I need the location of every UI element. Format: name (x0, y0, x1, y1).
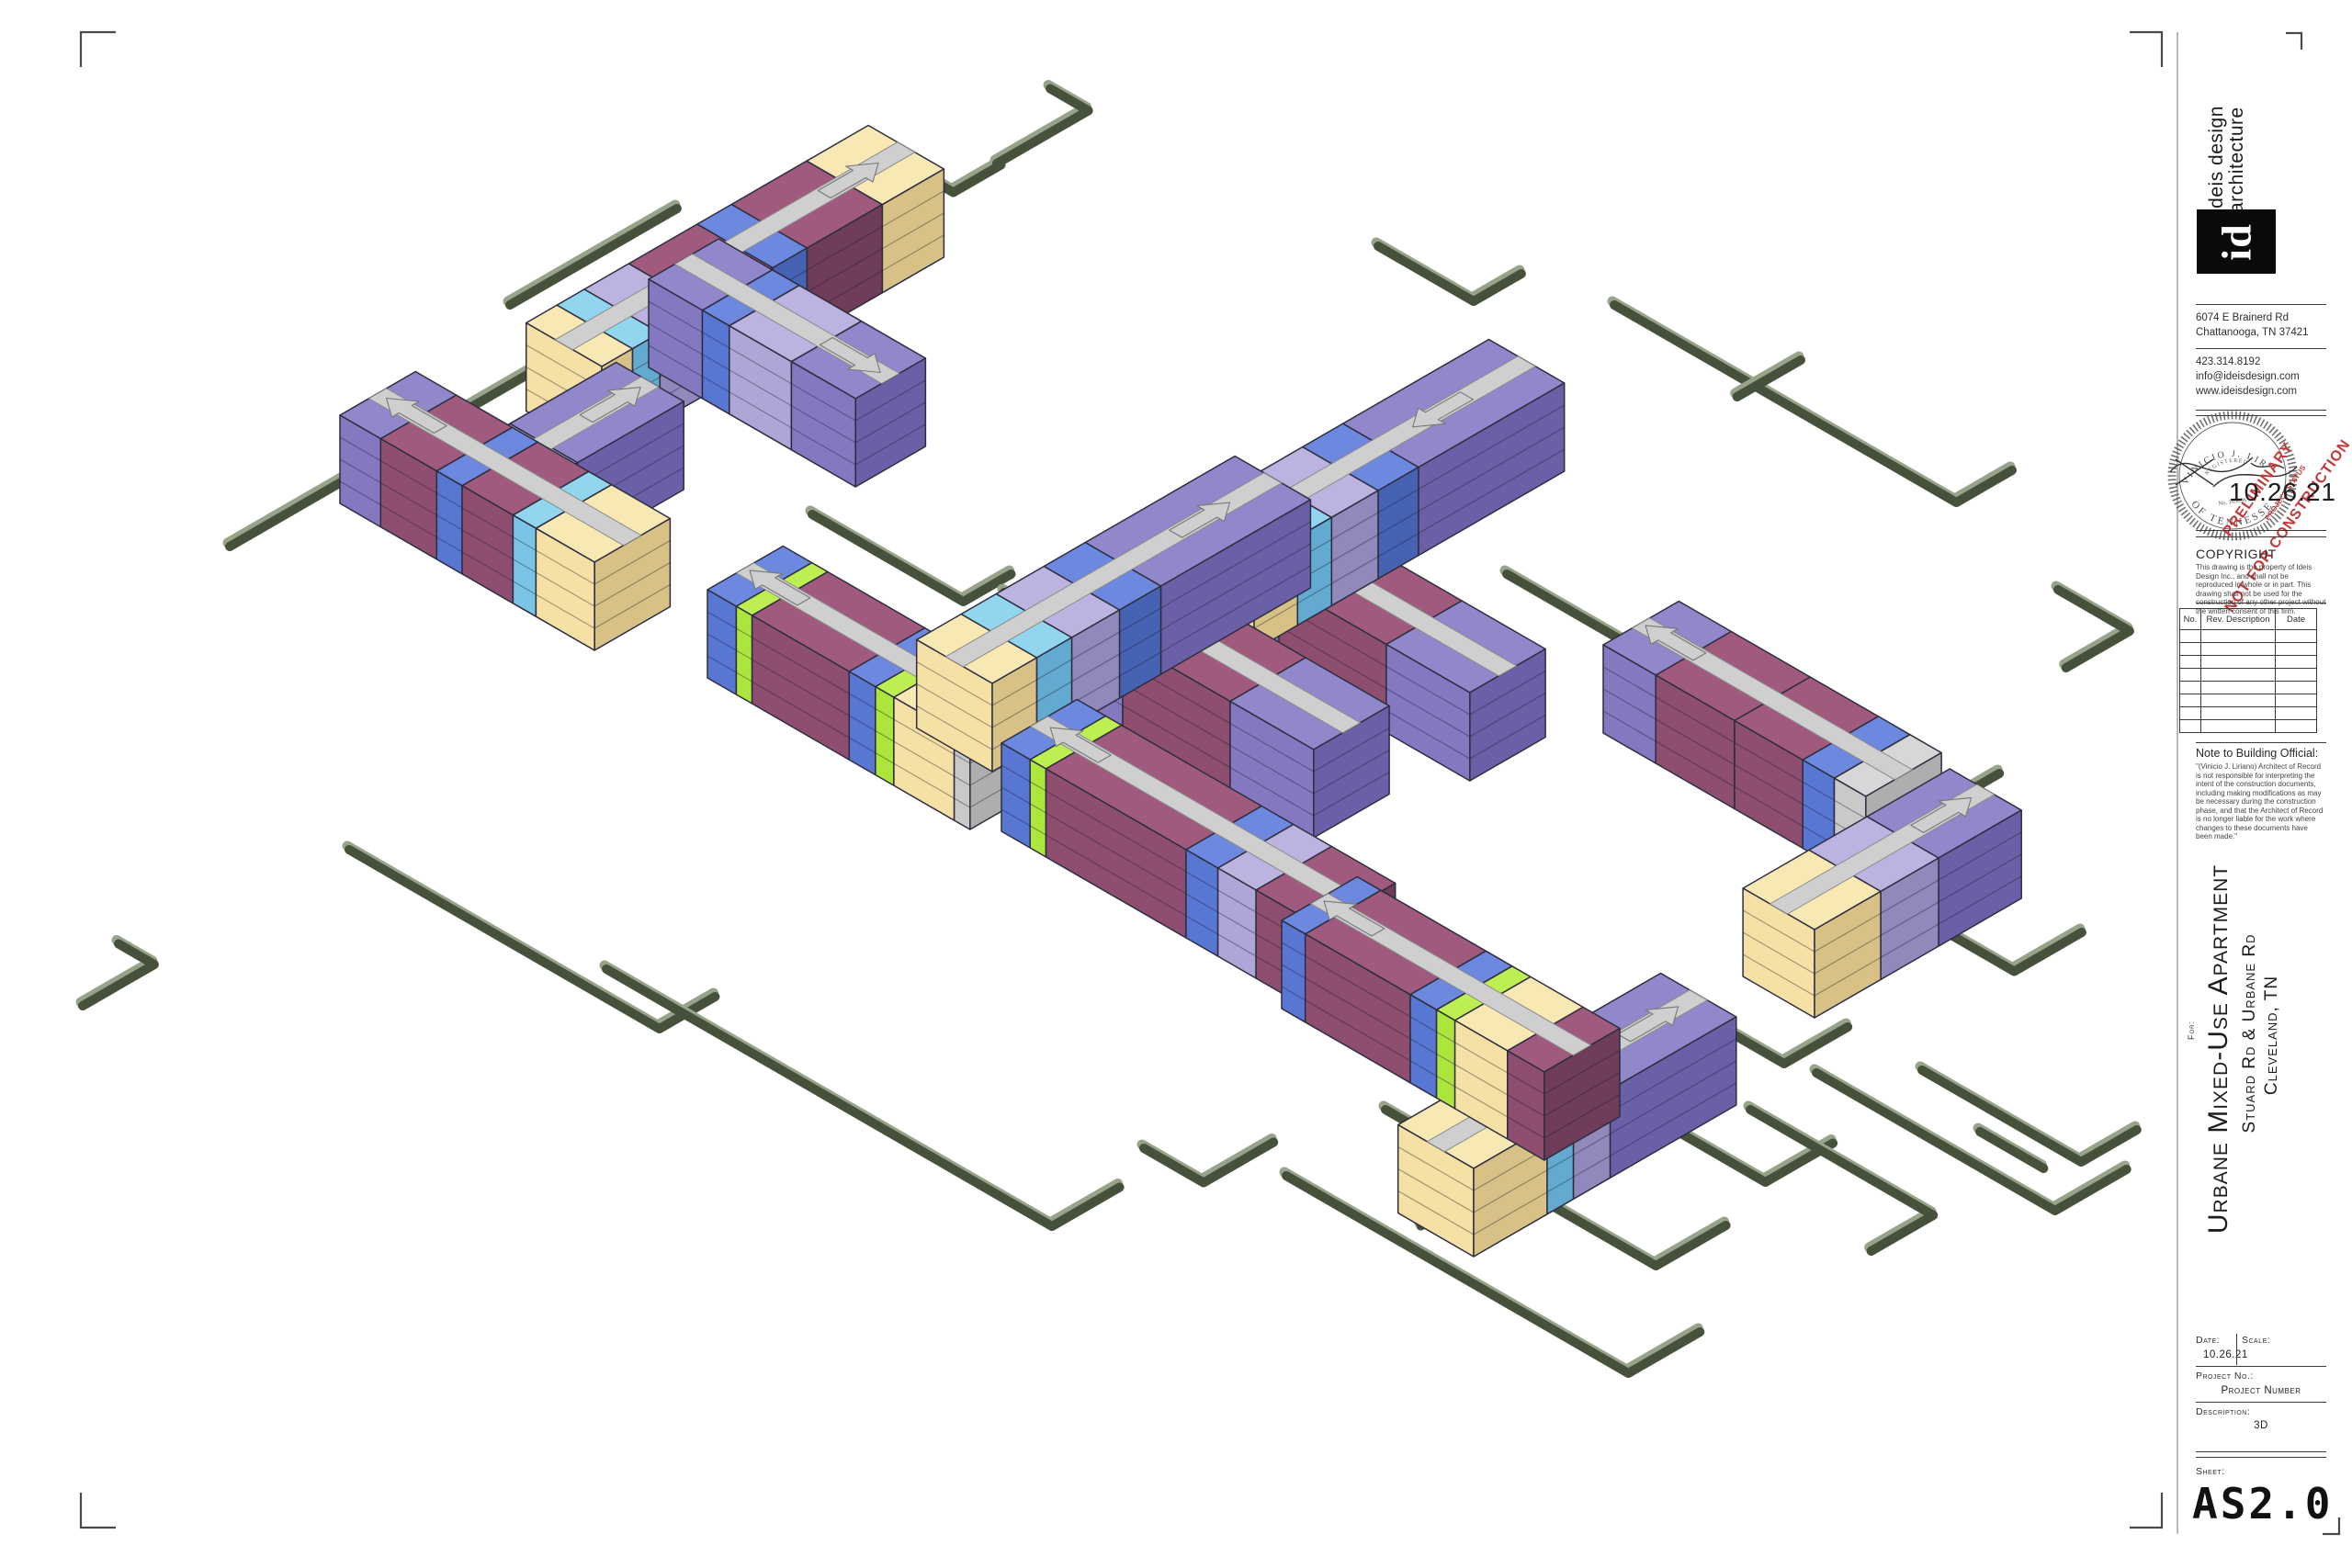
divider (2196, 536, 2326, 537)
building-massing (340, 126, 2021, 1258)
firm-address-1: 6074 E Brainerd Rd (2196, 310, 2289, 325)
scale-label: Scale: (2242, 1335, 2270, 1346)
divider (2196, 1366, 2326, 1367)
revision-table: No. Rev. Description Date (2179, 608, 2317, 733)
revision-row-empty (2180, 630, 2317, 643)
divider (2196, 1457, 2326, 1458)
site-plan-drawing (0, 0, 2352, 1568)
firm-address-2: Chattanooga, TN 37421 (2196, 325, 2309, 340)
date-label: Date: (2196, 1335, 2220, 1346)
firm-name: ideis design architecture (2207, 96, 2247, 213)
building-official-note-body: "(Vinicio J. Liriano) Architect of Recor… (2196, 762, 2324, 841)
firm-name-line2: architecture (2227, 96, 2247, 213)
revision-row-empty (2180, 643, 2317, 656)
project-no-label: Project No.: (2196, 1371, 2254, 1382)
revision-row-empty (2180, 720, 2317, 733)
building-official-note-heading: Note to Building Official: (2196, 747, 2318, 760)
revision-table-header: No. Rev. Description Date (2180, 609, 2317, 630)
firm-phone: 423.314.8192 (2196, 355, 2260, 369)
firm-logo-text: id (2212, 223, 2261, 260)
divider (2196, 1451, 2326, 1452)
project-title: Urbane Mixed-Use Apartment (2203, 856, 2234, 1242)
revision-row-empty (2180, 669, 2317, 682)
sheet-number: AS2.0 (2192, 1479, 2333, 1529)
description-value: 3D (2196, 1420, 2326, 1431)
divider (2196, 304, 2326, 305)
firm-website: www.ideisdesign.com (2196, 384, 2297, 399)
revision-row-empty (2180, 694, 2317, 707)
revision-row-empty (2180, 682, 2317, 694)
for-label: For: (2187, 1021, 2196, 1040)
description-label: Description: (2196, 1406, 2250, 1417)
divider (2196, 742, 2326, 743)
project-address: Stuard Rd & Urbane Rd (2240, 920, 2260, 1146)
divider (2196, 348, 2326, 349)
divider (2196, 603, 2326, 604)
divider (2196, 1402, 2326, 1403)
drawing-sheet: ideis design architecture id 6074 E Brai… (0, 0, 2352, 1568)
firm-name-line1: ideis design (2207, 96, 2227, 213)
project-city: Cleveland, TN (2262, 966, 2282, 1104)
stamp-date: 10.26.21 (2229, 478, 2336, 507)
revision-row-empty (2180, 707, 2317, 720)
rev-col-no: No. (2180, 609, 2201, 630)
firm-logo: id (2197, 209, 2276, 274)
divider (2236, 1334, 2237, 1365)
rev-col-date: Date (2276, 609, 2317, 630)
date-value: 10.26.21 (2203, 1349, 2248, 1360)
firm-email: info@ideisdesign.com (2196, 369, 2300, 384)
divider (2196, 530, 2326, 531)
project-no-value: Project Number (2196, 1385, 2326, 1396)
rev-col-desc: Rev. Description (2201, 609, 2276, 630)
revision-row-empty (2180, 656, 2317, 669)
sheet-label: Sheet: (2196, 1466, 2225, 1477)
copyright-heading: COPYRIGHT (2196, 547, 2277, 561)
